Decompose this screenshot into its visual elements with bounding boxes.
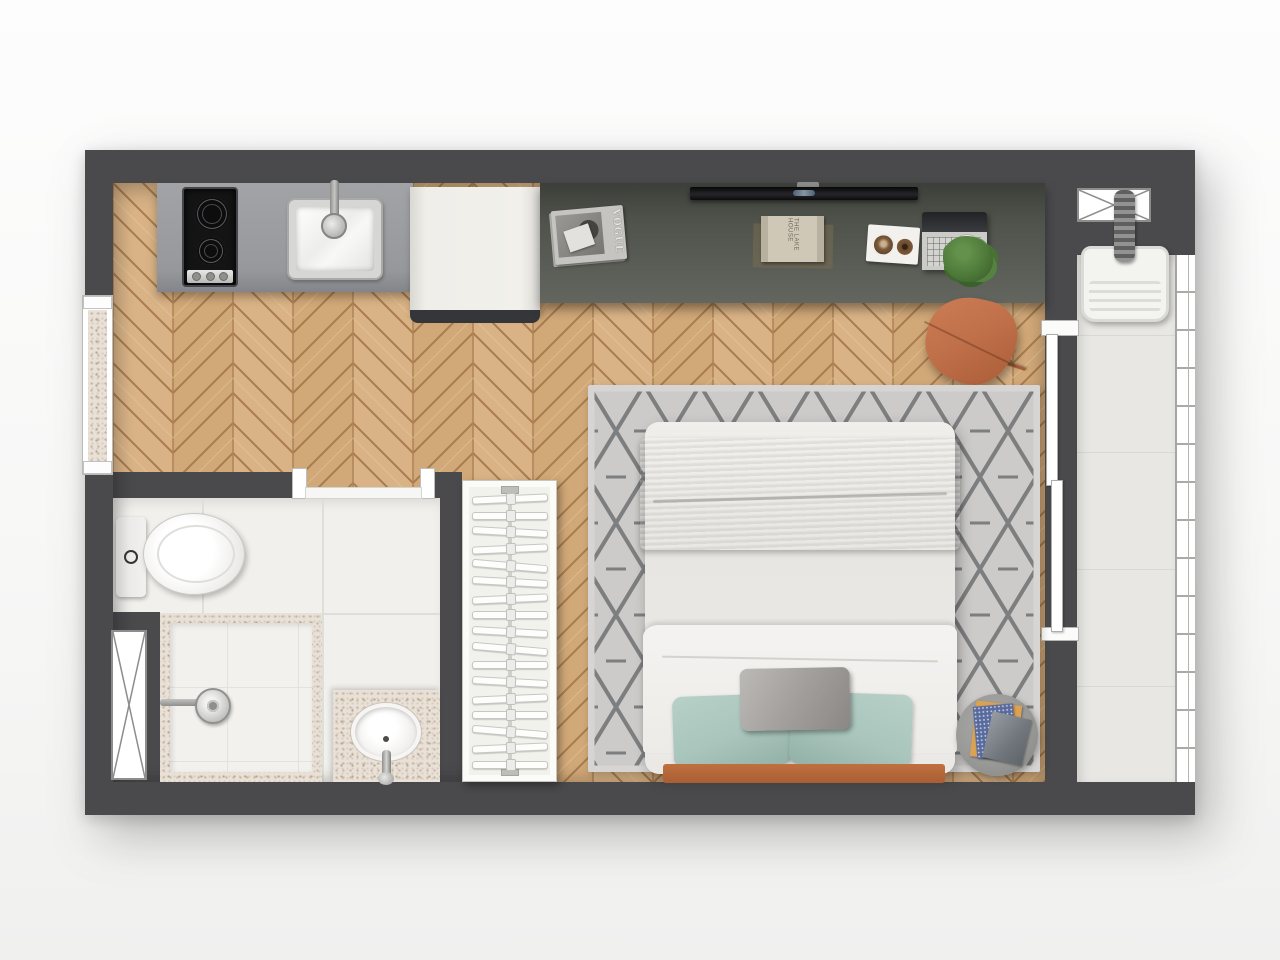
book-title: THE LAKE HOUSE (787, 218, 799, 262)
chair-seam (924, 321, 1015, 367)
wall-balcony-lower (1045, 639, 1077, 782)
floor-plan: VOGUE THE LAKE HOUSE (85, 150, 1195, 815)
clothes-hanger (472, 576, 548, 588)
bathroom-door-threshold[interactable] (305, 487, 422, 499)
side-table (956, 694, 1038, 776)
duvet-crease (662, 656, 938, 663)
render-canvas: VOGUE THE LAKE HOUSE (0, 0, 1280, 960)
balcony-floor (1077, 255, 1175, 782)
clothes-hanger (472, 641, 548, 656)
wall-top (85, 150, 1195, 183)
clothes-hanger (472, 711, 548, 719)
toilet-tank (116, 517, 146, 597)
clothes-hanger (472, 611, 548, 619)
kitchen-faucet-head (321, 213, 347, 239)
kitchen-window (82, 295, 113, 475)
shower-valve[interactable] (195, 688, 231, 724)
refrigerator (410, 187, 540, 313)
wall-bathroom-top (85, 472, 297, 498)
burner-large (195, 197, 229, 231)
tile-seam (322, 498, 324, 782)
wall-bottom (85, 782, 1193, 815)
tv-glint (793, 190, 815, 196)
blanket-fold (653, 492, 947, 503)
double-bed (643, 420, 957, 785)
shower-floor (170, 623, 312, 772)
wall-bathroom-closet (440, 472, 462, 782)
open-wardrobe (462, 480, 557, 782)
window-sill (88, 310, 107, 462)
magazine-title: VOGUE (610, 208, 626, 254)
clothes-hanger (472, 512, 548, 520)
bed-headboard (663, 764, 945, 783)
clothes-hanger (472, 724, 548, 739)
clothes-hanger (472, 676, 548, 688)
clothes-hanger (472, 526, 548, 538)
shower-area (160, 613, 322, 782)
laptop-screen (922, 212, 987, 232)
book-stack: THE LAKE HOUSE (761, 216, 824, 262)
clothes-hanger (472, 626, 548, 638)
clothes-hanger (472, 743, 548, 754)
clothes-hanger (472, 593, 548, 604)
pillow-gray (739, 667, 850, 731)
bathroom-shaft-window (111, 630, 147, 780)
clothes-hanger (472, 693, 548, 704)
clothes-hanger (472, 543, 548, 554)
sink-drain (383, 736, 389, 742)
door-jamb (420, 468, 435, 499)
window-frame-cap (83, 461, 112, 474)
donut (896, 238, 913, 255)
refrigerator-door (410, 310, 540, 323)
potted-plant (943, 236, 993, 282)
magazine-stack: VOGUE (551, 205, 627, 265)
shower-pipe (160, 699, 200, 706)
vanity-faucet-knob (378, 772, 394, 785)
clothes-hanger (472, 493, 548, 504)
flush-button[interactable] (124, 550, 138, 564)
clothes-hanger (472, 661, 548, 669)
toilet-bowl (143, 513, 245, 595)
laundry-hose (1114, 190, 1135, 262)
tv (690, 187, 918, 200)
clothes-hanger (472, 761, 548, 769)
wall-balcony-upper (1045, 183, 1077, 322)
closet-hangers (472, 495, 548, 769)
clothes-hanger (472, 558, 548, 573)
burner-small (197, 237, 225, 265)
window-frame-cap (83, 296, 112, 309)
sliding-door-panel[interactable] (1046, 334, 1058, 486)
sliding-door-panel[interactable] (1051, 480, 1063, 632)
cooktop-knobs (187, 270, 233, 283)
washboard (1089, 281, 1161, 315)
vanity-counter (333, 690, 440, 782)
breakfast-tray (866, 224, 920, 265)
gray-blanket (640, 438, 960, 550)
cooktop (182, 187, 238, 287)
balcony-glass-railing (1175, 255, 1195, 782)
coffee-cup (871, 233, 896, 258)
